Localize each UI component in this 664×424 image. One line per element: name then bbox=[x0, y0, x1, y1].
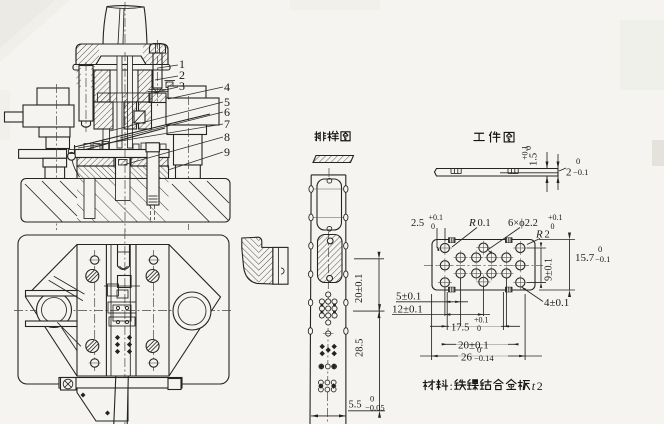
svg-text:0: 0 bbox=[598, 244, 602, 254]
svg-text:5.5: 5.5 bbox=[349, 400, 362, 411]
svg-text:28.5: 28.5 bbox=[355, 339, 366, 357]
svg-text:20±0.1: 20±0.1 bbox=[354, 274, 365, 303]
svg-text:3: 3 bbox=[179, 79, 185, 93]
svg-text:26: 26 bbox=[461, 352, 473, 364]
svg-text:−0.14: −0.14 bbox=[474, 353, 494, 363]
svg-text:17.5: 17.5 bbox=[451, 323, 469, 334]
svg-text:2: 2 bbox=[566, 167, 572, 179]
svg-text:−0.1: −0.1 bbox=[573, 167, 588, 177]
svg-text:−0.05: −0.05 bbox=[365, 403, 385, 413]
svg-text:2: 2 bbox=[537, 379, 543, 393]
svg-text:0: 0 bbox=[431, 222, 435, 231]
svg-text:4±0.1: 4±0.1 bbox=[544, 297, 569, 309]
svg-text:9±0.1: 9±0.1 bbox=[544, 258, 555, 281]
svg-text:0: 0 bbox=[524, 146, 533, 150]
svg-text:0.1: 0.1 bbox=[478, 218, 491, 229]
svg-text:+0.1: +0.1 bbox=[548, 213, 563, 222]
svg-text:+0.1: +0.1 bbox=[429, 213, 444, 222]
svg-text:2: 2 bbox=[545, 230, 550, 241]
svg-text::: : bbox=[450, 379, 453, 393]
svg-text:12±0.1: 12±0.1 bbox=[392, 304, 423, 316]
svg-text:15.7: 15.7 bbox=[575, 252, 595, 264]
svg-text:R: R bbox=[468, 217, 476, 229]
svg-text:9: 9 bbox=[224, 145, 230, 159]
svg-text:7: 7 bbox=[224, 117, 230, 131]
svg-text:0: 0 bbox=[576, 156, 580, 166]
svg-text:−0.1: −0.1 bbox=[595, 254, 610, 264]
svg-text:0: 0 bbox=[551, 222, 555, 231]
svg-text:6×ϕ2.2: 6×ϕ2.2 bbox=[508, 218, 538, 229]
svg-text:0: 0 bbox=[477, 324, 481, 333]
svg-text:1.5: 1.5 bbox=[529, 153, 540, 166]
svg-text:20±0.1: 20±0.1 bbox=[458, 340, 489, 352]
svg-text:4: 4 bbox=[224, 80, 230, 94]
svg-text:8: 8 bbox=[224, 130, 230, 144]
svg-text:5±0.1: 5±0.1 bbox=[396, 291, 421, 303]
svg-text:2.5: 2.5 bbox=[411, 218, 424, 229]
